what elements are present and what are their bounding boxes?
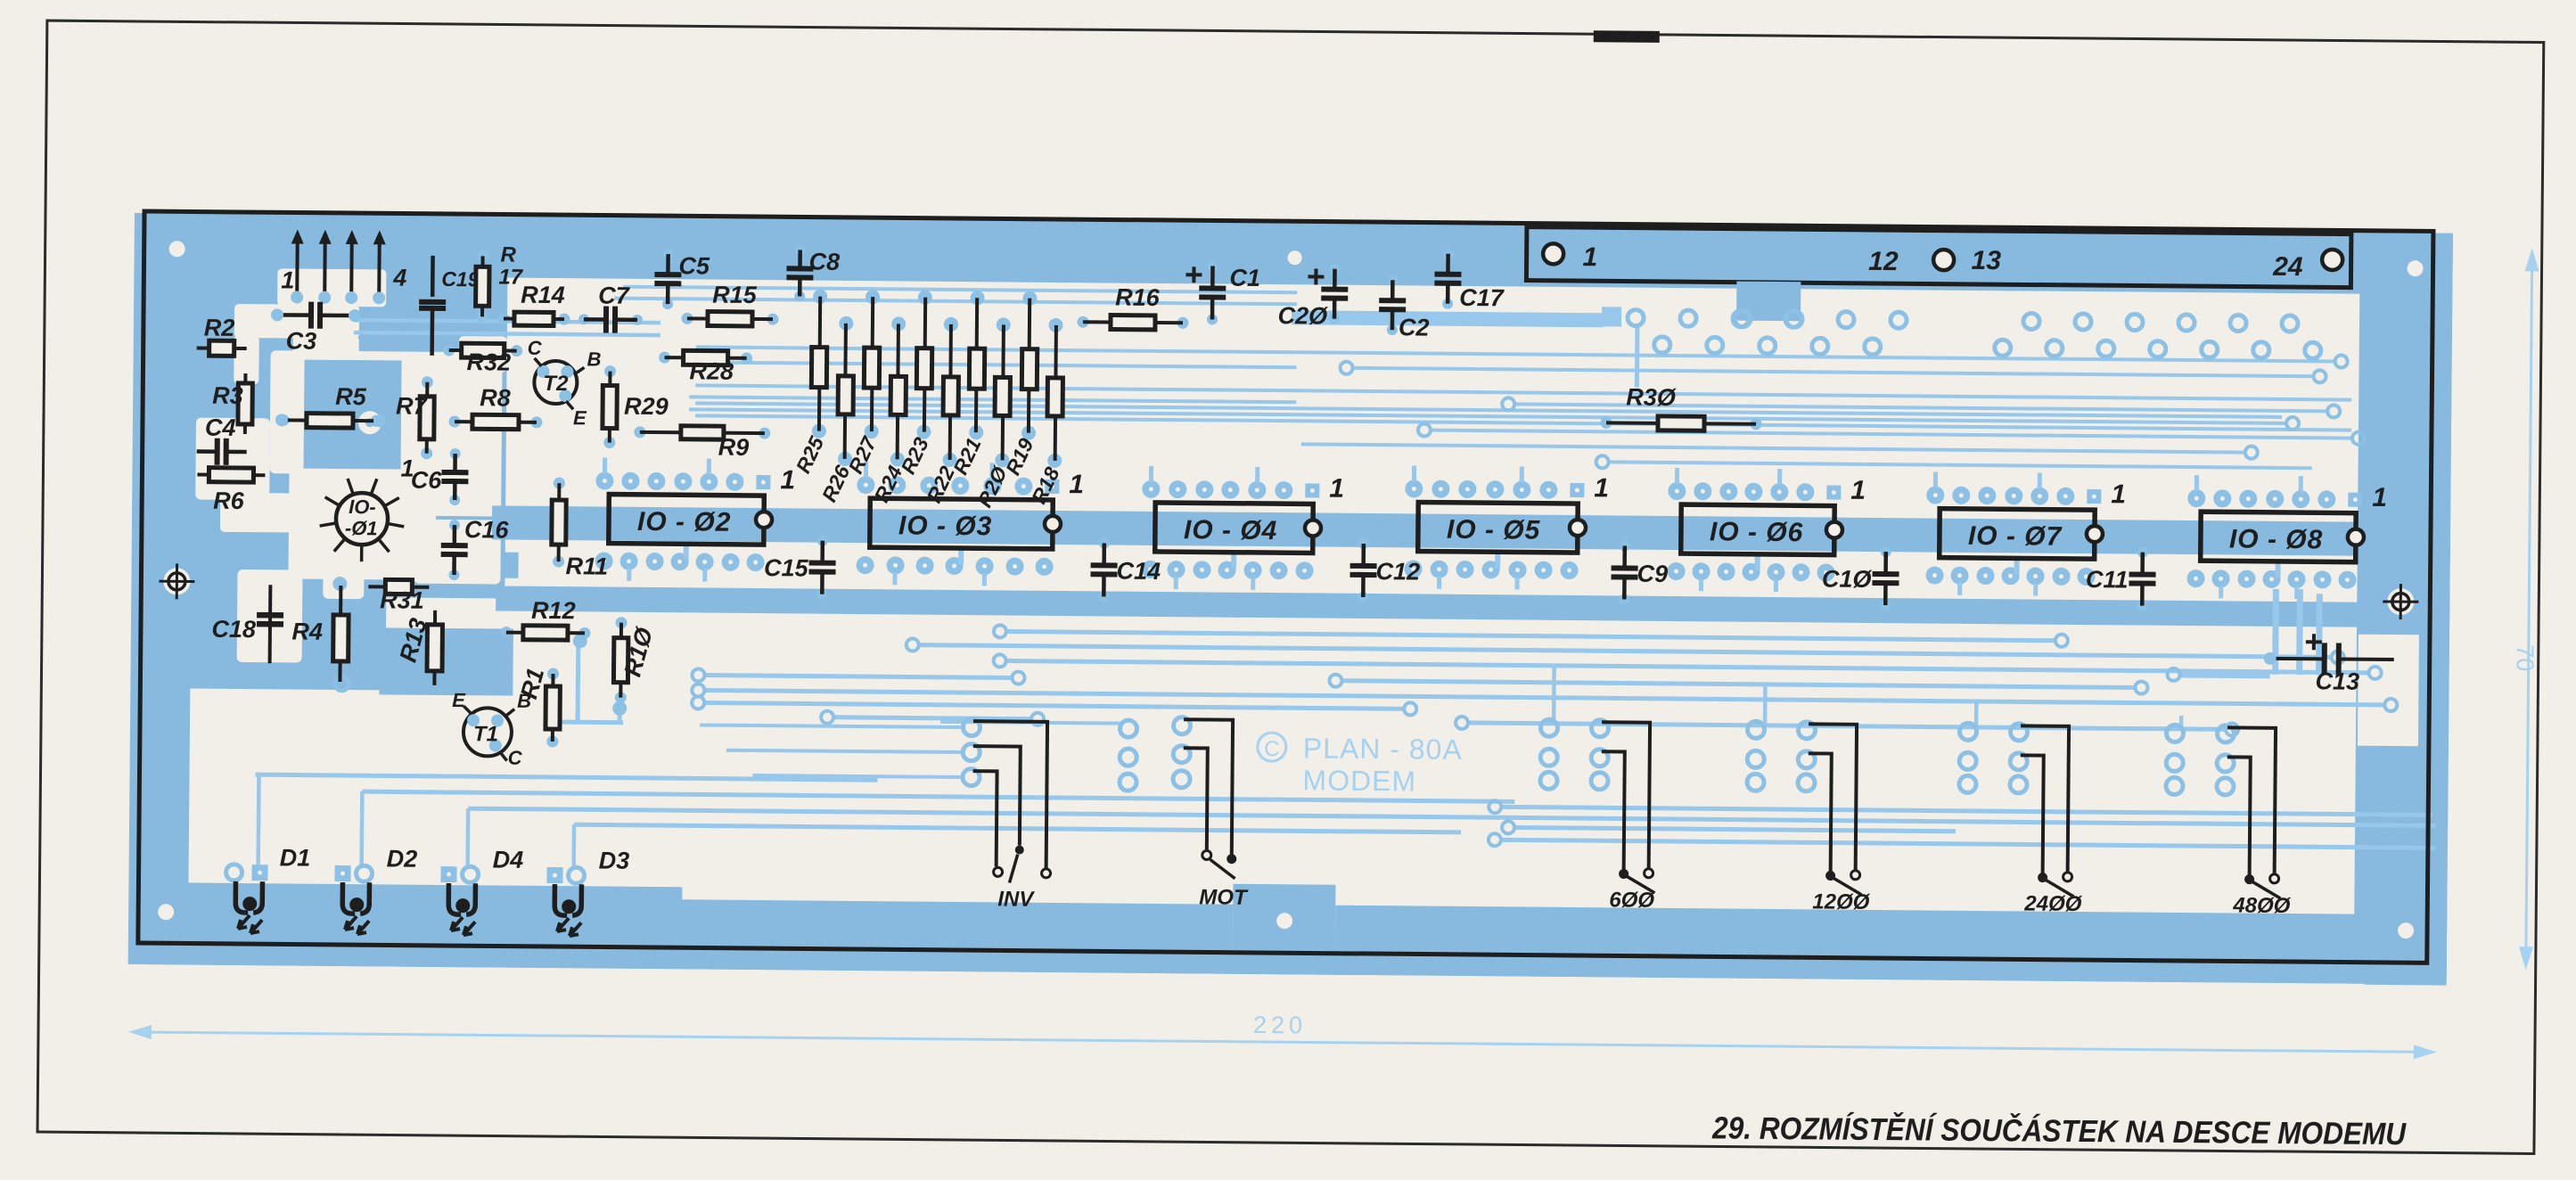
svg-text:C12: C12 [1375,558,1420,585]
svg-text:R4: R4 [291,618,323,644]
svg-text:C6: C6 [411,467,443,494]
svg-text:R29: R29 [624,393,669,420]
svg-text:70: 70 [2512,644,2539,671]
svg-text:PLAN - 80A: PLAN - 80A [1303,732,1463,766]
svg-text:R7: R7 [396,392,429,419]
svg-text:C11: C11 [2086,566,2129,593]
svg-text:24ØØ: 24ØØ [2023,891,2083,916]
svg-text:48ØØ: 48ØØ [2232,893,2292,918]
svg-text:R8: R8 [480,384,511,411]
svg-text:C14: C14 [1116,558,1161,585]
svg-text:IO - Ø5: IO - Ø5 [1447,515,1541,545]
svg-text:-Ø1: -Ø1 [345,517,378,539]
svg-text:D2: D2 [387,845,418,872]
svg-text:C2Ø: C2Ø [1277,302,1328,329]
svg-text:R32: R32 [466,348,511,375]
svg-text:R15: R15 [712,282,758,308]
svg-text:R2: R2 [204,315,235,341]
svg-text:IO - Ø6: IO - Ø6 [1710,517,1804,547]
svg-text:IO - Ø7: IO - Ø7 [1968,521,2063,552]
svg-text:1: 1 [2111,479,2126,509]
svg-text:C: C [1264,737,1280,761]
svg-text:D3: D3 [599,847,630,873]
svg-text:1: 1 [281,266,294,293]
svg-text:R9: R9 [718,434,750,461]
svg-text:29. ROZMÍSTĚNÍ SOUČÁSTEK NA DE: 29. ROZMÍSTĚNÍ SOUČÁSTEK NA DESCE MODEMU [1711,1110,2407,1151]
svg-text:C15: C15 [764,554,809,581]
svg-text:220: 220 [1253,1012,1307,1039]
svg-text:R3Ø: R3Ø [1626,384,1677,411]
svg-text:C18: C18 [211,616,256,643]
svg-text:R6: R6 [213,488,245,514]
svg-text:C5: C5 [678,252,710,279]
svg-text:13: 13 [1971,246,2001,275]
svg-text:R31: R31 [380,586,424,613]
svg-text:24: 24 [2272,252,2303,282]
svg-text:R16: R16 [1115,284,1161,311]
svg-text:IO - Ø4: IO - Ø4 [1184,515,1278,545]
svg-text:R14: R14 [521,282,565,308]
svg-text:C17: C17 [1459,284,1505,311]
svg-text:B: B [517,690,531,712]
svg-text:T2: T2 [543,372,569,396]
svg-text:B: B [587,348,601,370]
svg-text:C8: C8 [808,249,840,275]
svg-text:C1Ø: C1Ø [1822,565,1873,592]
svg-text:12: 12 [1868,247,1899,276]
svg-text:R11: R11 [565,553,608,579]
svg-text:1: 1 [1850,476,1866,505]
svg-text:IO-: IO- [349,496,376,518]
svg-text:C2: C2 [1399,314,1430,340]
svg-text:D4: D4 [493,846,524,873]
svg-text:R3: R3 [212,382,243,409]
svg-text:4: 4 [392,264,406,291]
svg-text:E: E [573,406,587,429]
svg-text:C: C [508,747,523,769]
svg-text:R5: R5 [335,383,367,410]
svg-text:IO - Ø8: IO - Ø8 [2229,524,2324,554]
svg-text:E: E [452,689,466,711]
svg-text:MODEM: MODEM [1302,764,1416,797]
svg-text:R12: R12 [531,597,576,624]
svg-text:C9: C9 [1637,561,1668,587]
svg-text:IO - Ø3: IO - Ø3 [898,511,993,541]
svg-text:1: 1 [1582,242,1597,272]
svg-text:1: 1 [1329,474,1344,504]
svg-text:C7: C7 [598,282,631,308]
svg-text:1: 1 [780,465,795,495]
svg-text:1: 1 [2372,483,2387,512]
svg-text:R28: R28 [689,357,734,384]
svg-text:INV: INV [997,887,1035,911]
svg-text:C16: C16 [464,516,510,543]
svg-text:IO - Ø2: IO - Ø2 [637,507,732,537]
svg-text:C3: C3 [286,327,317,354]
svg-text:6ØØ: 6ØØ [1609,888,1655,912]
svg-text:T1: T1 [473,722,498,746]
svg-text:C13: C13 [2315,668,2359,694]
svg-text:C1: C1 [1229,265,1260,291]
svg-text:D1: D1 [280,844,311,871]
svg-text:1: 1 [1594,473,1609,503]
svg-text:R: R [500,243,516,267]
svg-text:C4: C4 [205,414,236,441]
svg-text:1: 1 [1069,470,1084,499]
svg-text:C: C [528,337,543,359]
svg-text:12ØØ: 12ØØ [1812,889,1871,914]
svg-text:MOT: MOT [1199,885,1249,909]
